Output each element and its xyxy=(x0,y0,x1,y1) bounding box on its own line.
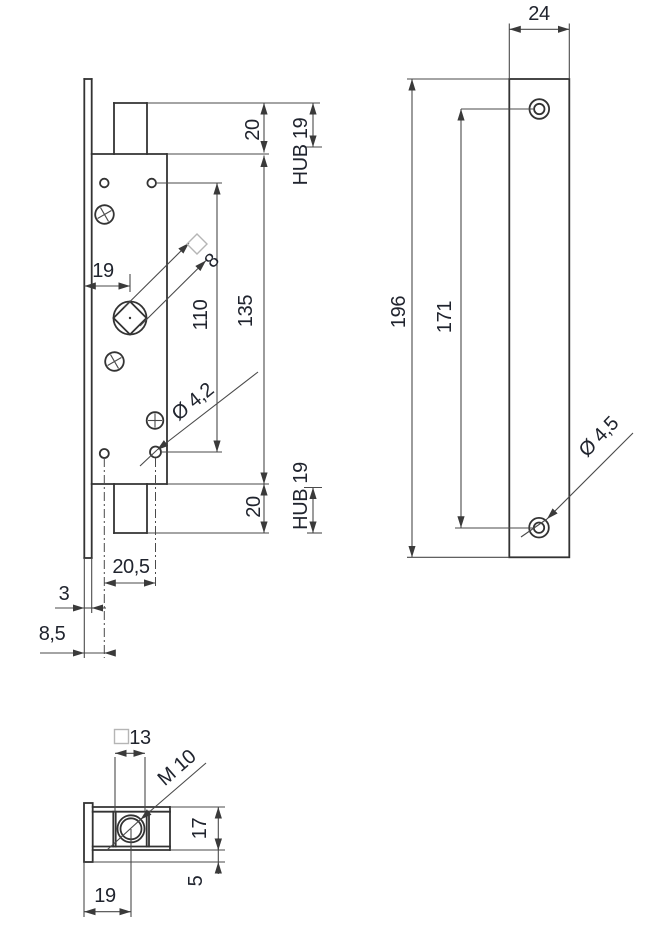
bottom-view: 13 M 10 17 5 19 xyxy=(84,727,225,917)
square-13-symbol xyxy=(115,730,129,744)
dim-3-label: 3 xyxy=(59,583,70,605)
dim-19-bottom-label: 19 xyxy=(94,885,116,907)
dim-17-label: 17 xyxy=(189,818,211,840)
dim-hole-45-label: Ø 4,5 xyxy=(575,412,624,461)
dim-135-label: 135 xyxy=(235,295,257,327)
dim-8-square-label: 8 xyxy=(200,249,223,272)
fixing-hole-bottom-left xyxy=(100,449,109,458)
bottom-bolt-block xyxy=(114,484,147,533)
dim-hole-42-label: Ø 4,2 xyxy=(168,379,219,426)
faceplate-end xyxy=(84,803,93,862)
dim-5-label: 5 xyxy=(185,875,207,886)
dim-13-label: 13 xyxy=(129,727,151,749)
dim-196-label: 196 xyxy=(388,296,410,328)
screw-icon xyxy=(102,349,127,374)
spindle-square-symbol xyxy=(187,234,207,254)
right-view: 24 196 171 Ø 4,5 xyxy=(388,3,633,557)
front-dimension-lines xyxy=(40,103,313,653)
screw-icon xyxy=(147,412,164,429)
dim-8-5-label: 8,5 xyxy=(39,623,66,645)
right-extension-lines xyxy=(407,24,569,558)
fixing-hole-top-right xyxy=(147,179,156,188)
dim-20-5-label: 20,5 xyxy=(112,556,150,578)
dim-171-label: 171 xyxy=(434,301,456,333)
top-bolt-block xyxy=(114,103,147,154)
front-view: 20 HUB 19 135 110 19 8 Ø 4,2 20 HUB 19 2… xyxy=(39,79,322,658)
dim-19-backset-label: 19 xyxy=(92,260,114,282)
dim-hub19-top-label: HUB 19 xyxy=(290,117,312,185)
dim-110-label: 110 xyxy=(190,299,212,330)
drawing-page: 20 HUB 19 135 110 19 8 Ø 4,2 20 HUB 19 2… xyxy=(0,0,664,925)
dim-hub19-bottom-label: HUB 19 xyxy=(290,462,312,530)
faceplate-front xyxy=(509,79,569,557)
fixing-hole-top-left xyxy=(100,179,109,188)
dim-24-label: 24 xyxy=(528,3,550,25)
screw-icon xyxy=(92,202,117,227)
lock-technical-drawing: 20 HUB 19 135 110 19 8 Ø 4,2 20 HUB 19 2… xyxy=(0,0,664,925)
faceplate-edge xyxy=(84,79,91,558)
spindle-follower xyxy=(114,302,147,335)
dim-m10-label: M 10 xyxy=(154,745,201,790)
dim-20-bottom-label: 20 xyxy=(243,496,265,518)
dim-20-top-label: 20 xyxy=(242,119,264,141)
